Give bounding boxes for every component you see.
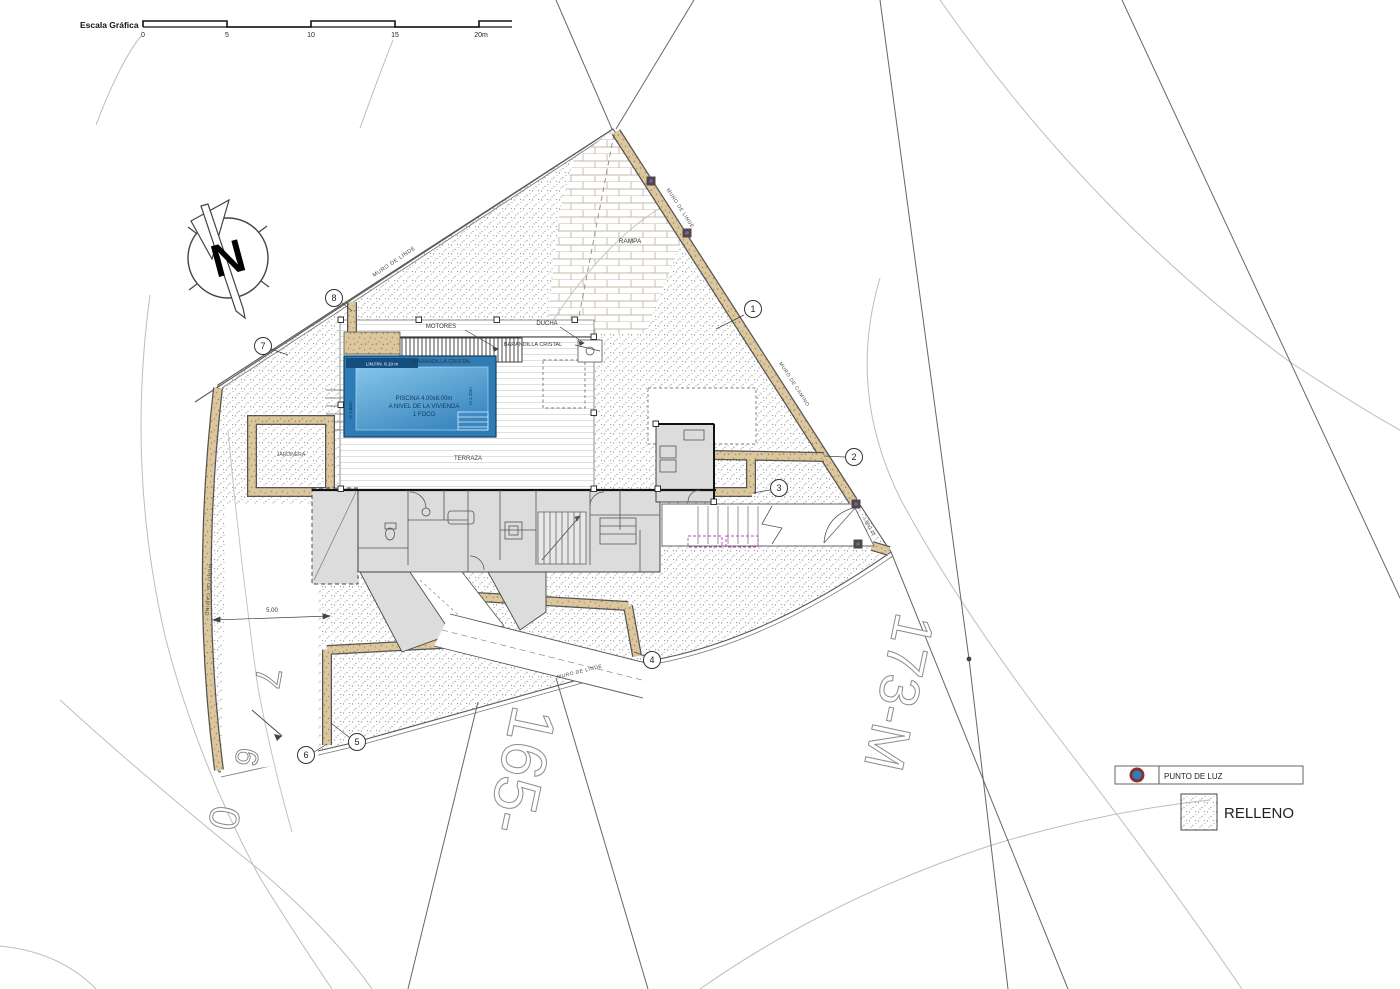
pool-depth-left: H 1.80m [348,401,353,419]
svg-text:5: 5 [354,737,359,747]
site-plan-drawing: RAMPA LIN.FIN. 8.10 m PISCINA 4.00x8.00m… [0,0,1400,989]
survey-node [967,657,972,662]
interior-stair [538,512,586,564]
marker-5: 5 [349,734,366,751]
wall-offset-dim-text: 5.00 [266,608,278,614]
legend-relleno-swatch [1181,794,1217,830]
legend-relleno-label: RELLENO [1224,805,1294,822]
terraza-label: TERRAZA [454,456,482,462]
motores-label: MOTORES [426,324,456,330]
compass-n: N [205,229,251,288]
jardinera-label: JARDINERA [277,452,306,458]
scale-bar: Escala Gráfica 0 5 10 15 20m [80,20,512,39]
svg-text:0: 0 [199,803,249,834]
svg-text:7: 7 [260,341,265,351]
svg-text:10: 10 [307,32,315,39]
parcel-south-number: 165- [473,700,570,840]
svg-text:6: 6 [303,750,308,760]
pool-label-2: A NIVEL DE LA VIVIENDA [389,404,460,410]
marker-8: 8 [326,290,343,307]
svg-text:1: 1 [750,304,755,314]
pool-label-3: 1 FOCO [413,412,436,418]
legend: PUNTO DE LUZ RELLENO [1115,766,1303,830]
west-path-strip [221,505,318,773]
svg-text:3: 3 [776,483,781,493]
svg-text:8: 8 [331,293,336,303]
legend-light-label: PUNTO DE LUZ [1164,772,1223,781]
svg-text:0: 0 [141,32,145,39]
marker-7: 7 [255,338,272,355]
svg-text:20m: 20m [474,32,488,39]
pool-depth-right: H 1.20m [468,387,473,405]
svg-text:2: 2 [851,452,856,462]
marker-4: 4 [644,652,661,669]
marker-2: 2 [846,449,863,466]
svg-text:15: 15 [391,32,399,39]
marker-1: 1 [745,301,762,318]
marker-6: 6 [298,747,315,764]
entrance-corridor [662,504,874,547]
pool-label-1: PISCINA 4.00x8.00m [396,396,453,402]
ducha-label: DUCHA [536,321,557,327]
marker-3: 3 [771,480,788,497]
scale-bar-label: Escala Gráfica [80,20,139,30]
pool: LIN.FIN. 8.10 m PISCINA 4.00x8.00m A NIV… [344,356,496,437]
svg-text:4: 4 [649,655,654,665]
parcel-east-number: 173-M [852,608,947,776]
svg-text:5: 5 [225,32,229,39]
pool-edge-label: LIN.FIN. 8.10 m [366,362,399,367]
north-compass: N [188,200,269,318]
barandilla-pool-label: BARANDILLA CRISTAL [413,359,471,365]
barandilla-top-label: BARANDILLA CRISTAL [504,342,562,348]
light-point-icon [1131,769,1143,781]
rampa-label: RAMPA [619,238,642,245]
site-plan-sheet: RAMPA LIN.FIN. 8.10 m PISCINA 4.00x8.00m… [0,0,1400,989]
